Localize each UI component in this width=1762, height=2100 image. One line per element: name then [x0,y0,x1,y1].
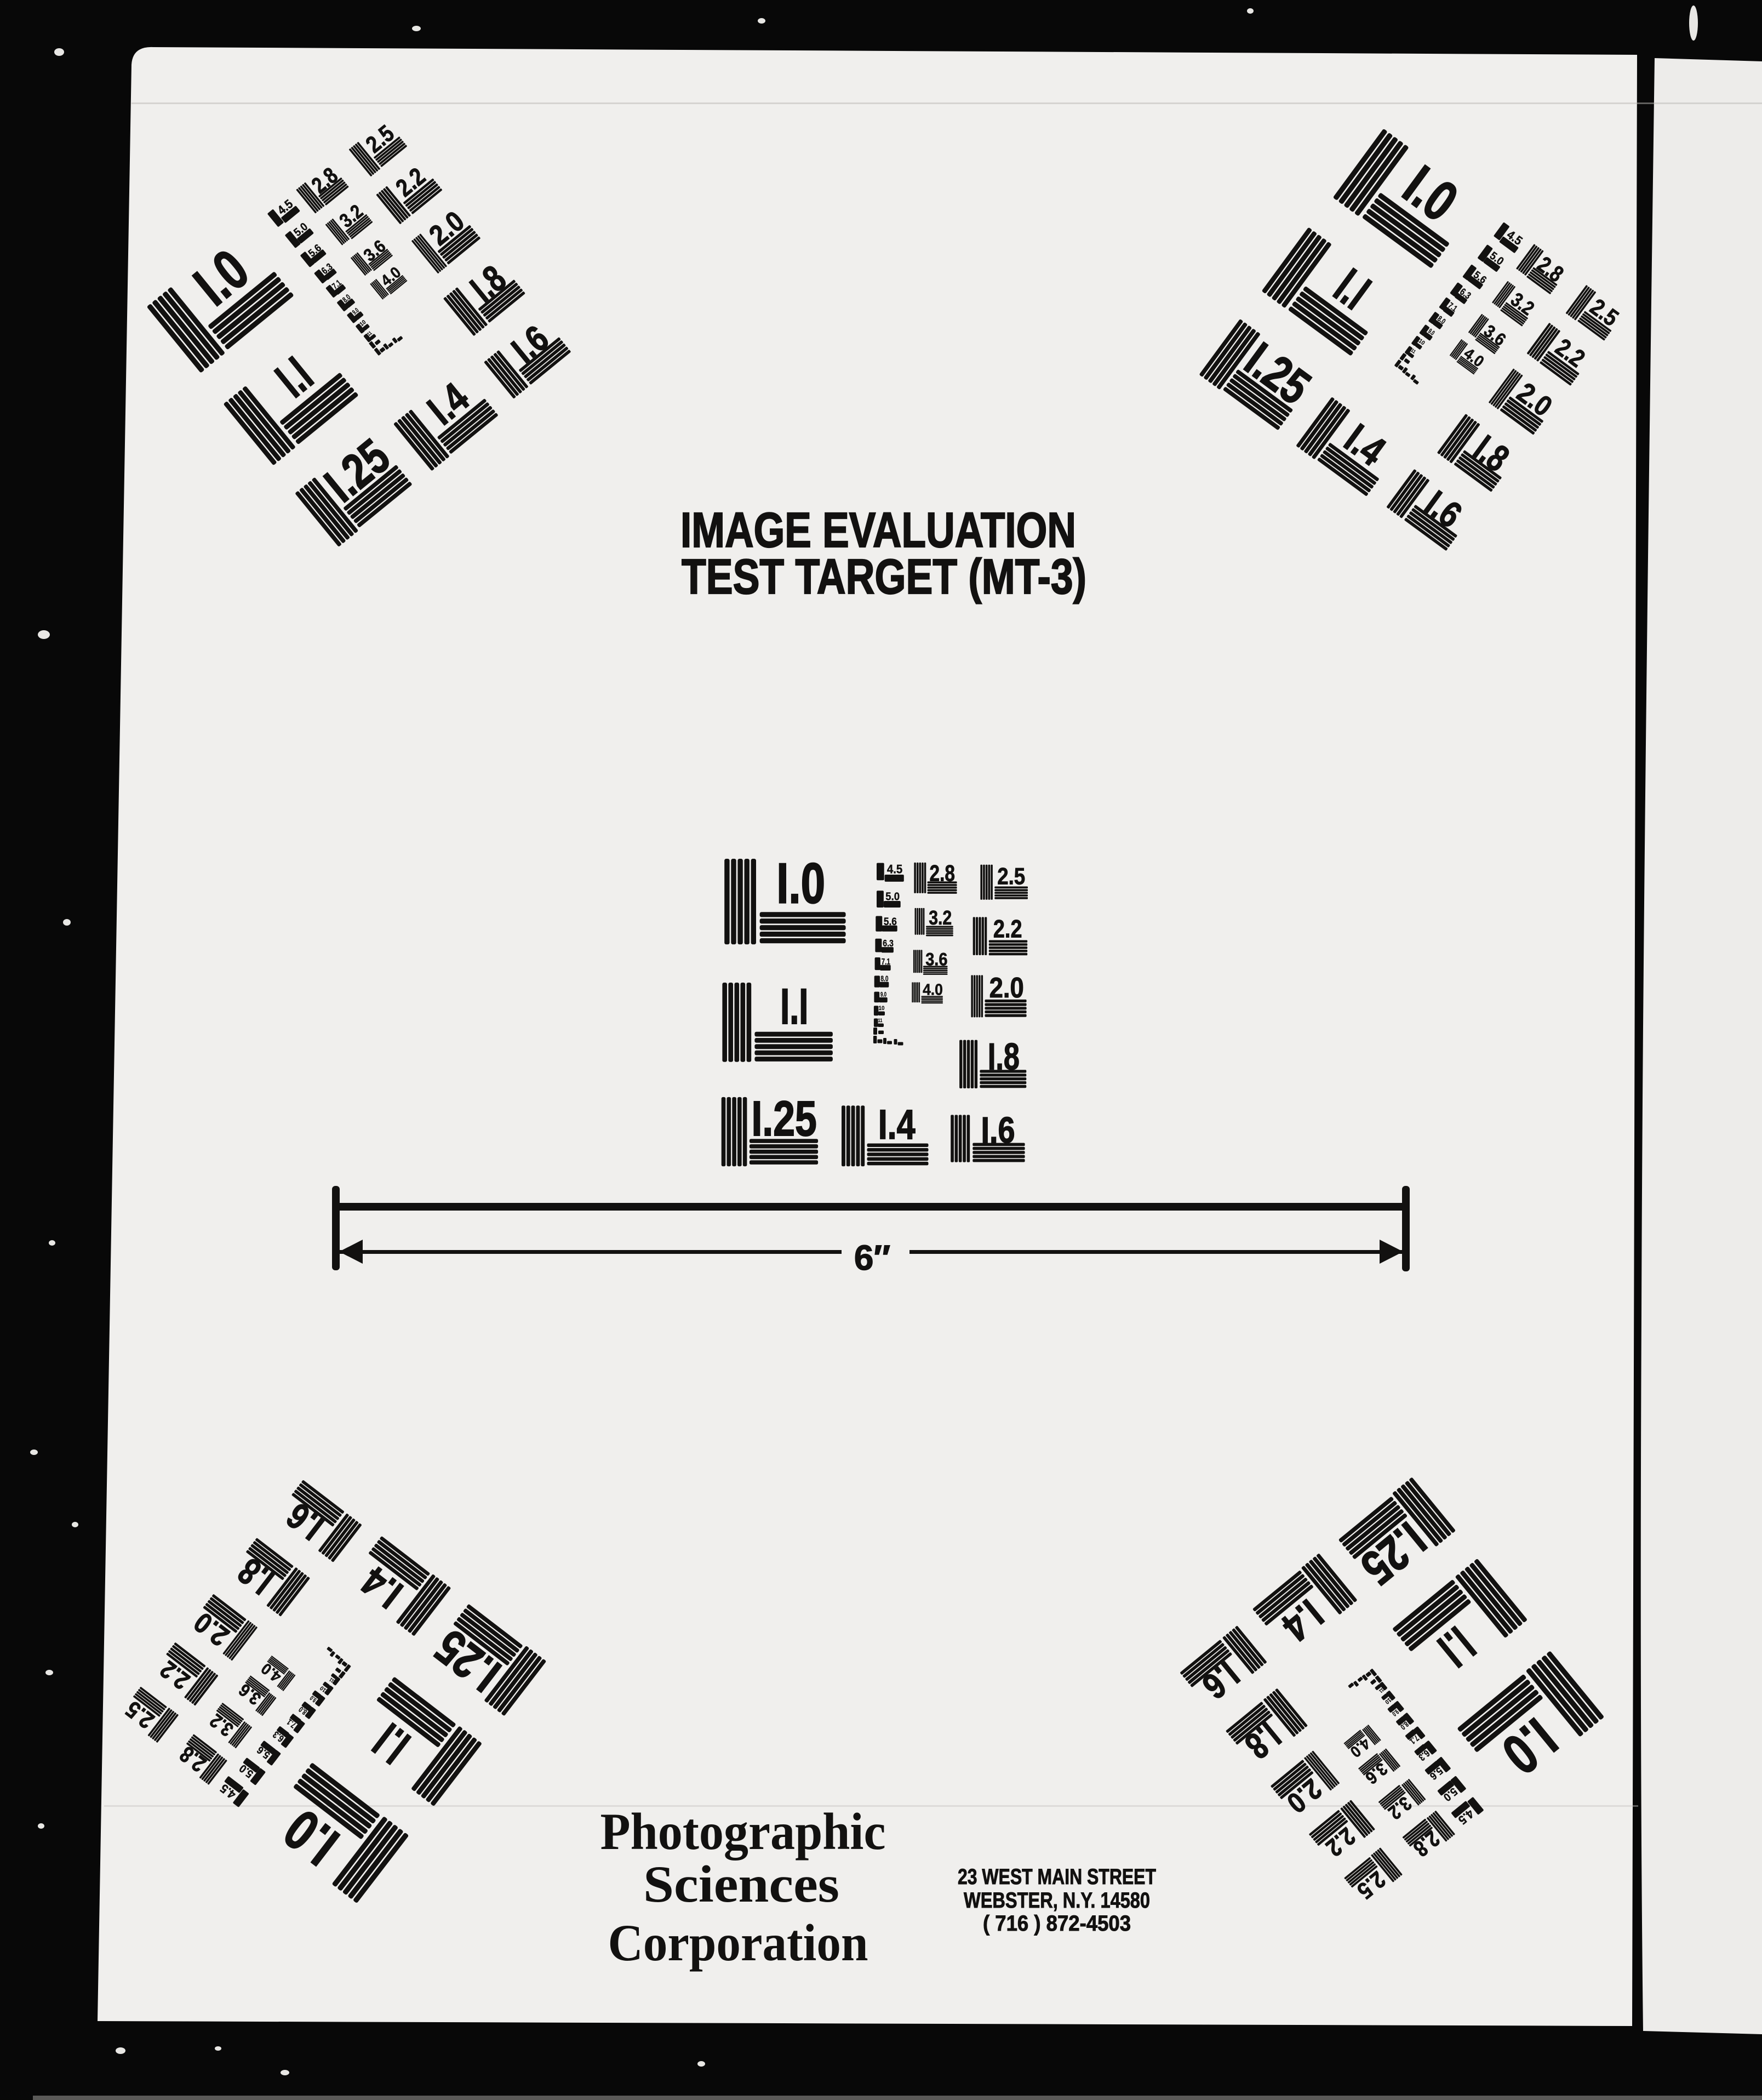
svg-text:TEST TARGET (MT-3): TEST TARGET (MT-3) [682,550,1086,604]
svg-text:6″: 6″ [854,1238,890,1277]
svg-text:Photographic: Photographic [600,1802,886,1861]
svg-text:Corporation: Corporation [608,1914,868,1972]
svg-text:Sciences: Sciences [643,1855,839,1913]
svg-text:23 WEST MAIN STREET: 23 WEST MAIN STREET [958,1865,1156,1889]
svg-text:WEBSTER, N.Y. 14580: WEBSTER, N.Y. 14580 [964,1888,1150,1913]
svg-text:( 716 ) 872-4503: ( 716 ) 872-4503 [983,1911,1131,1936]
